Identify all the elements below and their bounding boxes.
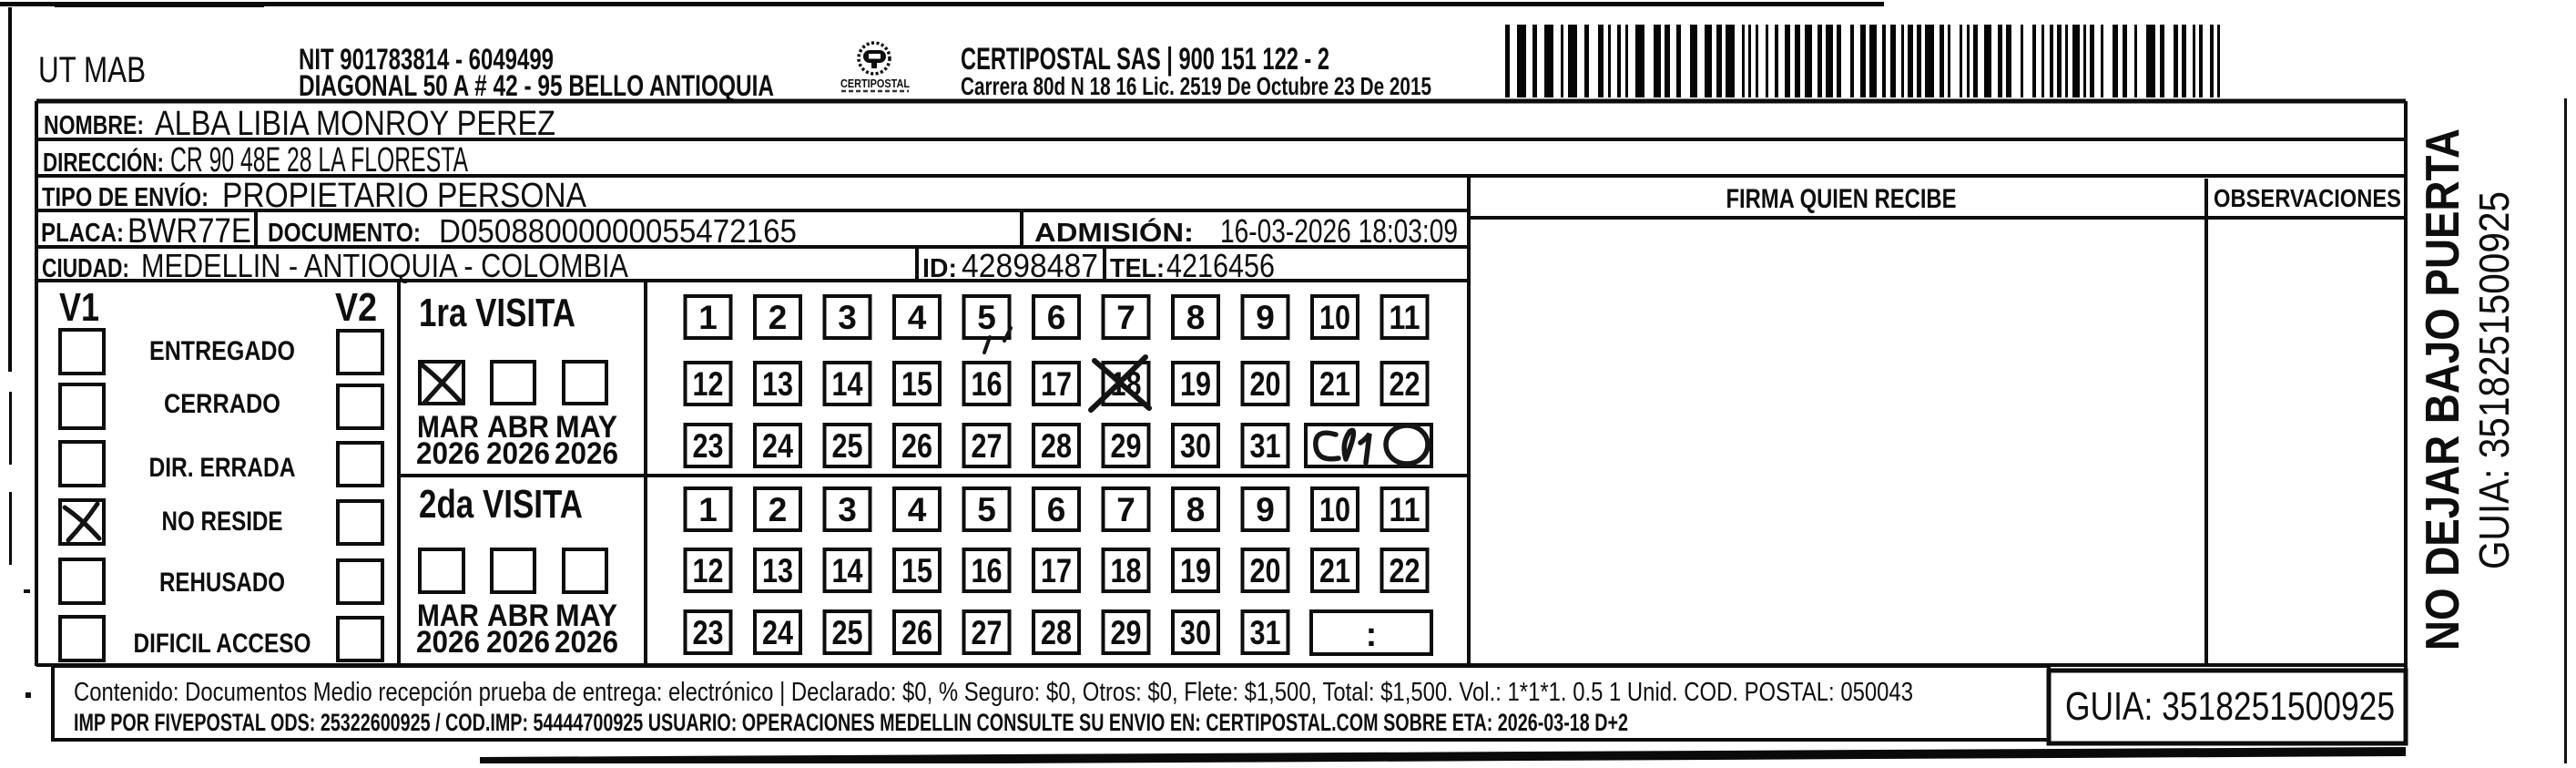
svg-text:TEL:: TEL: (1110, 254, 1165, 283)
svg-text:24: 24 (762, 427, 793, 465)
svg-text:4: 4 (908, 299, 927, 336)
svg-text:2026: 2026 (486, 436, 550, 471)
svg-text:14: 14 (832, 552, 863, 589)
svg-text:2026: 2026 (486, 625, 550, 660)
svg-text:12: 12 (693, 552, 724, 589)
svg-text:DIAGONAL 50 A # 42 - 95 BELLO: DIAGONAL 50 A # 42 - 95 BELLO ANTIOQUIA (299, 69, 774, 102)
svg-text:42898487: 42898487 (962, 247, 1098, 284)
svg-text:ID:: ID: (922, 254, 957, 283)
svg-text:20: 20 (1250, 552, 1281, 589)
svg-text:DIR. ERRADA: DIR. ERRADA (149, 453, 296, 483)
svg-text:10: 10 (1319, 299, 1350, 336)
svg-text:MEDELLIN - ANTIOQUIA - COLOMBI: MEDELLIN - ANTIOQUIA - COLOMBIA (141, 247, 628, 284)
svg-text:CERRADO: CERRADO (164, 389, 280, 419)
svg-text:26: 26 (901, 614, 932, 651)
svg-text:19: 19 (1180, 552, 1211, 589)
svg-text:21: 21 (1319, 552, 1350, 589)
svg-text:31: 31 (1250, 427, 1281, 465)
svg-text:NO DEJAR BAJO PUERTA: NO DEJAR BAJO PUERTA (2417, 128, 2469, 650)
svg-text:BWR77E: BWR77E (127, 212, 251, 251)
svg-text:Contenido: Documentos Medio re: Contenido: Documentos Medio recepción pr… (74, 678, 1913, 707)
svg-text:FIRMA QUIEN RECIBE: FIRMA QUIEN RECIBE (1726, 184, 1957, 214)
svg-text:2: 2 (769, 491, 788, 528)
svg-text:OBSERVACIONES: OBSERVACIONES (2214, 184, 2401, 212)
svg-text:19: 19 (1180, 365, 1211, 403)
svg-text:UT MAB: UT MAB (38, 50, 146, 90)
svg-text:22: 22 (1390, 365, 1420, 403)
svg-text:24: 24 (762, 614, 793, 651)
svg-text:V2: V2 (335, 285, 377, 330)
svg-text:9: 9 (1256, 299, 1275, 336)
svg-text:5: 5 (977, 299, 996, 336)
svg-text:IMP POR FIVEPOSTAL ODS: 253226: IMP POR FIVEPOSTAL ODS: 25322600925 / CO… (74, 709, 1628, 736)
svg-text:7: 7 (1116, 299, 1135, 336)
svg-text:5: 5 (977, 491, 996, 528)
svg-text:1ra VISITA: 1ra VISITA (419, 291, 575, 335)
svg-text:7: 7 (1116, 491, 1135, 528)
svg-text:25: 25 (832, 614, 863, 651)
svg-text:30: 30 (1180, 427, 1211, 465)
svg-text:23: 23 (693, 614, 724, 651)
svg-text:3: 3 (838, 491, 857, 528)
svg-text:2026: 2026 (416, 436, 480, 471)
svg-text:PLACA:: PLACA: (41, 219, 124, 248)
svg-text::: : (1366, 616, 1378, 654)
svg-text:GUIA: 3518251500925: GUIA: 3518251500925 (2470, 191, 2518, 569)
svg-text:CERTIPOSTAL: CERTIPOSTAL (840, 77, 910, 90)
svg-text:29: 29 (1111, 427, 1142, 465)
svg-text:31: 31 (1250, 614, 1281, 651)
svg-text:13: 13 (762, 552, 793, 589)
svg-text:CR 90 48E 28 LA FLORESTA: CR 90 48E 28 LA FLORESTA (170, 141, 468, 179)
svg-text:D05088000000055472165: D05088000000055472165 (439, 212, 797, 250)
svg-text:12: 12 (693, 365, 724, 403)
svg-text:REHUSADO: REHUSADO (159, 568, 285, 598)
svg-text:1: 1 (698, 299, 718, 336)
svg-text:9: 9 (1256, 491, 1275, 528)
svg-text:NO RESIDE: NO RESIDE (162, 507, 283, 537)
svg-text:25: 25 (832, 427, 863, 465)
svg-text:4216456: 4216456 (1166, 247, 1275, 284)
svg-text:27: 27 (972, 614, 1003, 651)
svg-text:ENTREGADO: ENTREGADO (149, 336, 295, 366)
svg-text:15: 15 (901, 365, 932, 403)
svg-text:23: 23 (693, 427, 724, 465)
svg-text:Carrera 80d N 18 16 Lic. 2519: Carrera 80d N 18 16 Lic. 2519 De Octubre… (961, 72, 1431, 100)
svg-text:2026: 2026 (555, 436, 618, 471)
svg-text:30: 30 (1180, 614, 1211, 651)
svg-text:NOMBRE:: NOMBRE: (44, 111, 144, 140)
svg-text:15: 15 (901, 552, 932, 589)
svg-text:2da VISITA: 2da VISITA (419, 482, 583, 527)
svg-text:1: 1 (698, 491, 718, 528)
svg-text:26: 26 (901, 427, 932, 465)
svg-text:14: 14 (832, 365, 863, 403)
svg-text:DOCUMENTO:: DOCUMENTO: (268, 219, 421, 248)
svg-text:V1: V1 (59, 285, 99, 330)
svg-text:10: 10 (1319, 491, 1350, 528)
svg-text:3: 3 (838, 299, 857, 336)
svg-text:8: 8 (1186, 491, 1206, 528)
svg-text:CIUDAD:: CIUDAD: (42, 254, 129, 283)
svg-text:16-03-2026 18:03:09: 16-03-2026 18:03:09 (1220, 212, 1458, 250)
svg-text:11: 11 (1390, 299, 1420, 336)
svg-text:8: 8 (1186, 299, 1206, 336)
svg-text:TIPO DE ENVÍO:: TIPO DE ENVÍO: (42, 181, 209, 212)
svg-text:2026: 2026 (416, 625, 480, 660)
svg-text:18: 18 (1111, 552, 1142, 589)
svg-text:2026: 2026 (555, 625, 618, 660)
svg-text:DIFICIL ACCESO: DIFICIL ACCESO (134, 629, 311, 659)
svg-text:22: 22 (1390, 552, 1420, 589)
svg-text:ADMISIÓN:: ADMISIÓN: (1034, 217, 1194, 248)
svg-text:DIRECCIÓN:: DIRECCIÓN: (43, 147, 164, 178)
svg-text:6: 6 (1047, 299, 1066, 336)
svg-text:29: 29 (1111, 614, 1142, 651)
svg-text:PROPIETARIO PERSONA: PROPIETARIO PERSONA (222, 177, 587, 215)
svg-text:27: 27 (972, 427, 1003, 465)
svg-text:17: 17 (1041, 552, 1072, 589)
svg-text:GUIA: 3518251500925: GUIA: 3518251500925 (2065, 684, 2395, 729)
svg-text:11: 11 (1390, 491, 1420, 528)
svg-text:4: 4 (908, 491, 927, 528)
svg-text:16: 16 (972, 552, 1003, 589)
svg-text:28: 28 (1041, 427, 1072, 465)
svg-text:21: 21 (1319, 365, 1350, 403)
svg-text:28: 28 (1041, 614, 1072, 651)
svg-text:20: 20 (1250, 365, 1281, 403)
svg-text:16: 16 (972, 365, 1003, 403)
svg-text:13: 13 (762, 365, 793, 403)
svg-text:2: 2 (769, 299, 788, 336)
svg-text:ALBA LIBIA MONROY PEREZ: ALBA LIBIA MONROY PEREZ (155, 105, 555, 143)
svg-text:17: 17 (1041, 365, 1072, 403)
svg-text:6: 6 (1047, 491, 1066, 528)
